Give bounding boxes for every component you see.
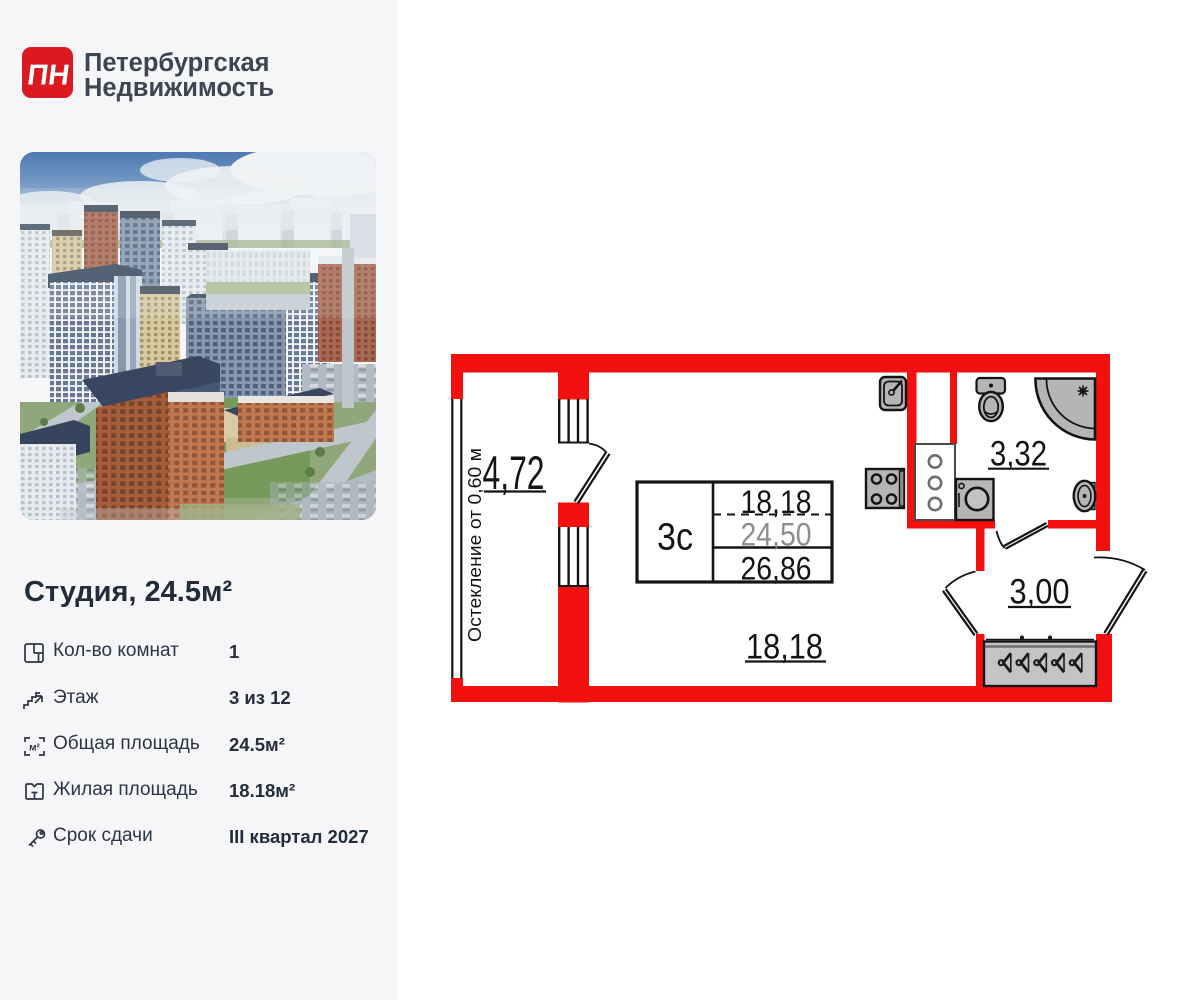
svg-text:Остекление от 0,60 м: Остекление от 0,60 м	[464, 448, 485, 642]
svg-text:м²: м²	[29, 743, 40, 754]
svg-text:26,86: 26,86	[741, 551, 812, 587]
svg-text:18,18: 18,18	[741, 484, 812, 520]
svg-text:ПН: ПН	[26, 60, 72, 92]
svg-text:24,50: 24,50	[741, 517, 812, 553]
svg-text:3,00: 3,00	[1010, 573, 1070, 612]
svg-text:3с: 3с	[657, 517, 693, 559]
